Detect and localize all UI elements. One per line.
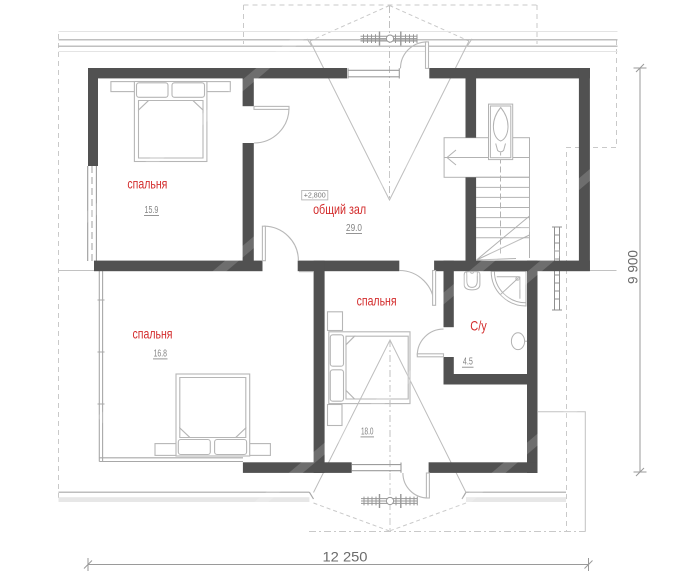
- svg-text:спальня: спальня: [133, 325, 173, 341]
- svg-text:9 900: 9 900: [626, 250, 641, 284]
- svg-text:12 250: 12 250: [323, 550, 368, 565]
- svg-text:15.9: 15.9: [145, 205, 159, 216]
- svg-text:+2,800: +2,800: [304, 191, 326, 200]
- svg-text:спальня: спальня: [357, 293, 397, 309]
- svg-text:спальня: спальня: [127, 176, 167, 192]
- svg-text:общий зал: общий зал: [313, 201, 366, 217]
- svg-text:18.0: 18.0: [361, 426, 374, 437]
- svg-text:С/у: С/у: [470, 318, 487, 334]
- svg-text:4.5: 4.5: [463, 357, 473, 368]
- svg-text:16.8: 16.8: [154, 348, 168, 359]
- svg-text:29.0: 29.0: [346, 223, 362, 234]
